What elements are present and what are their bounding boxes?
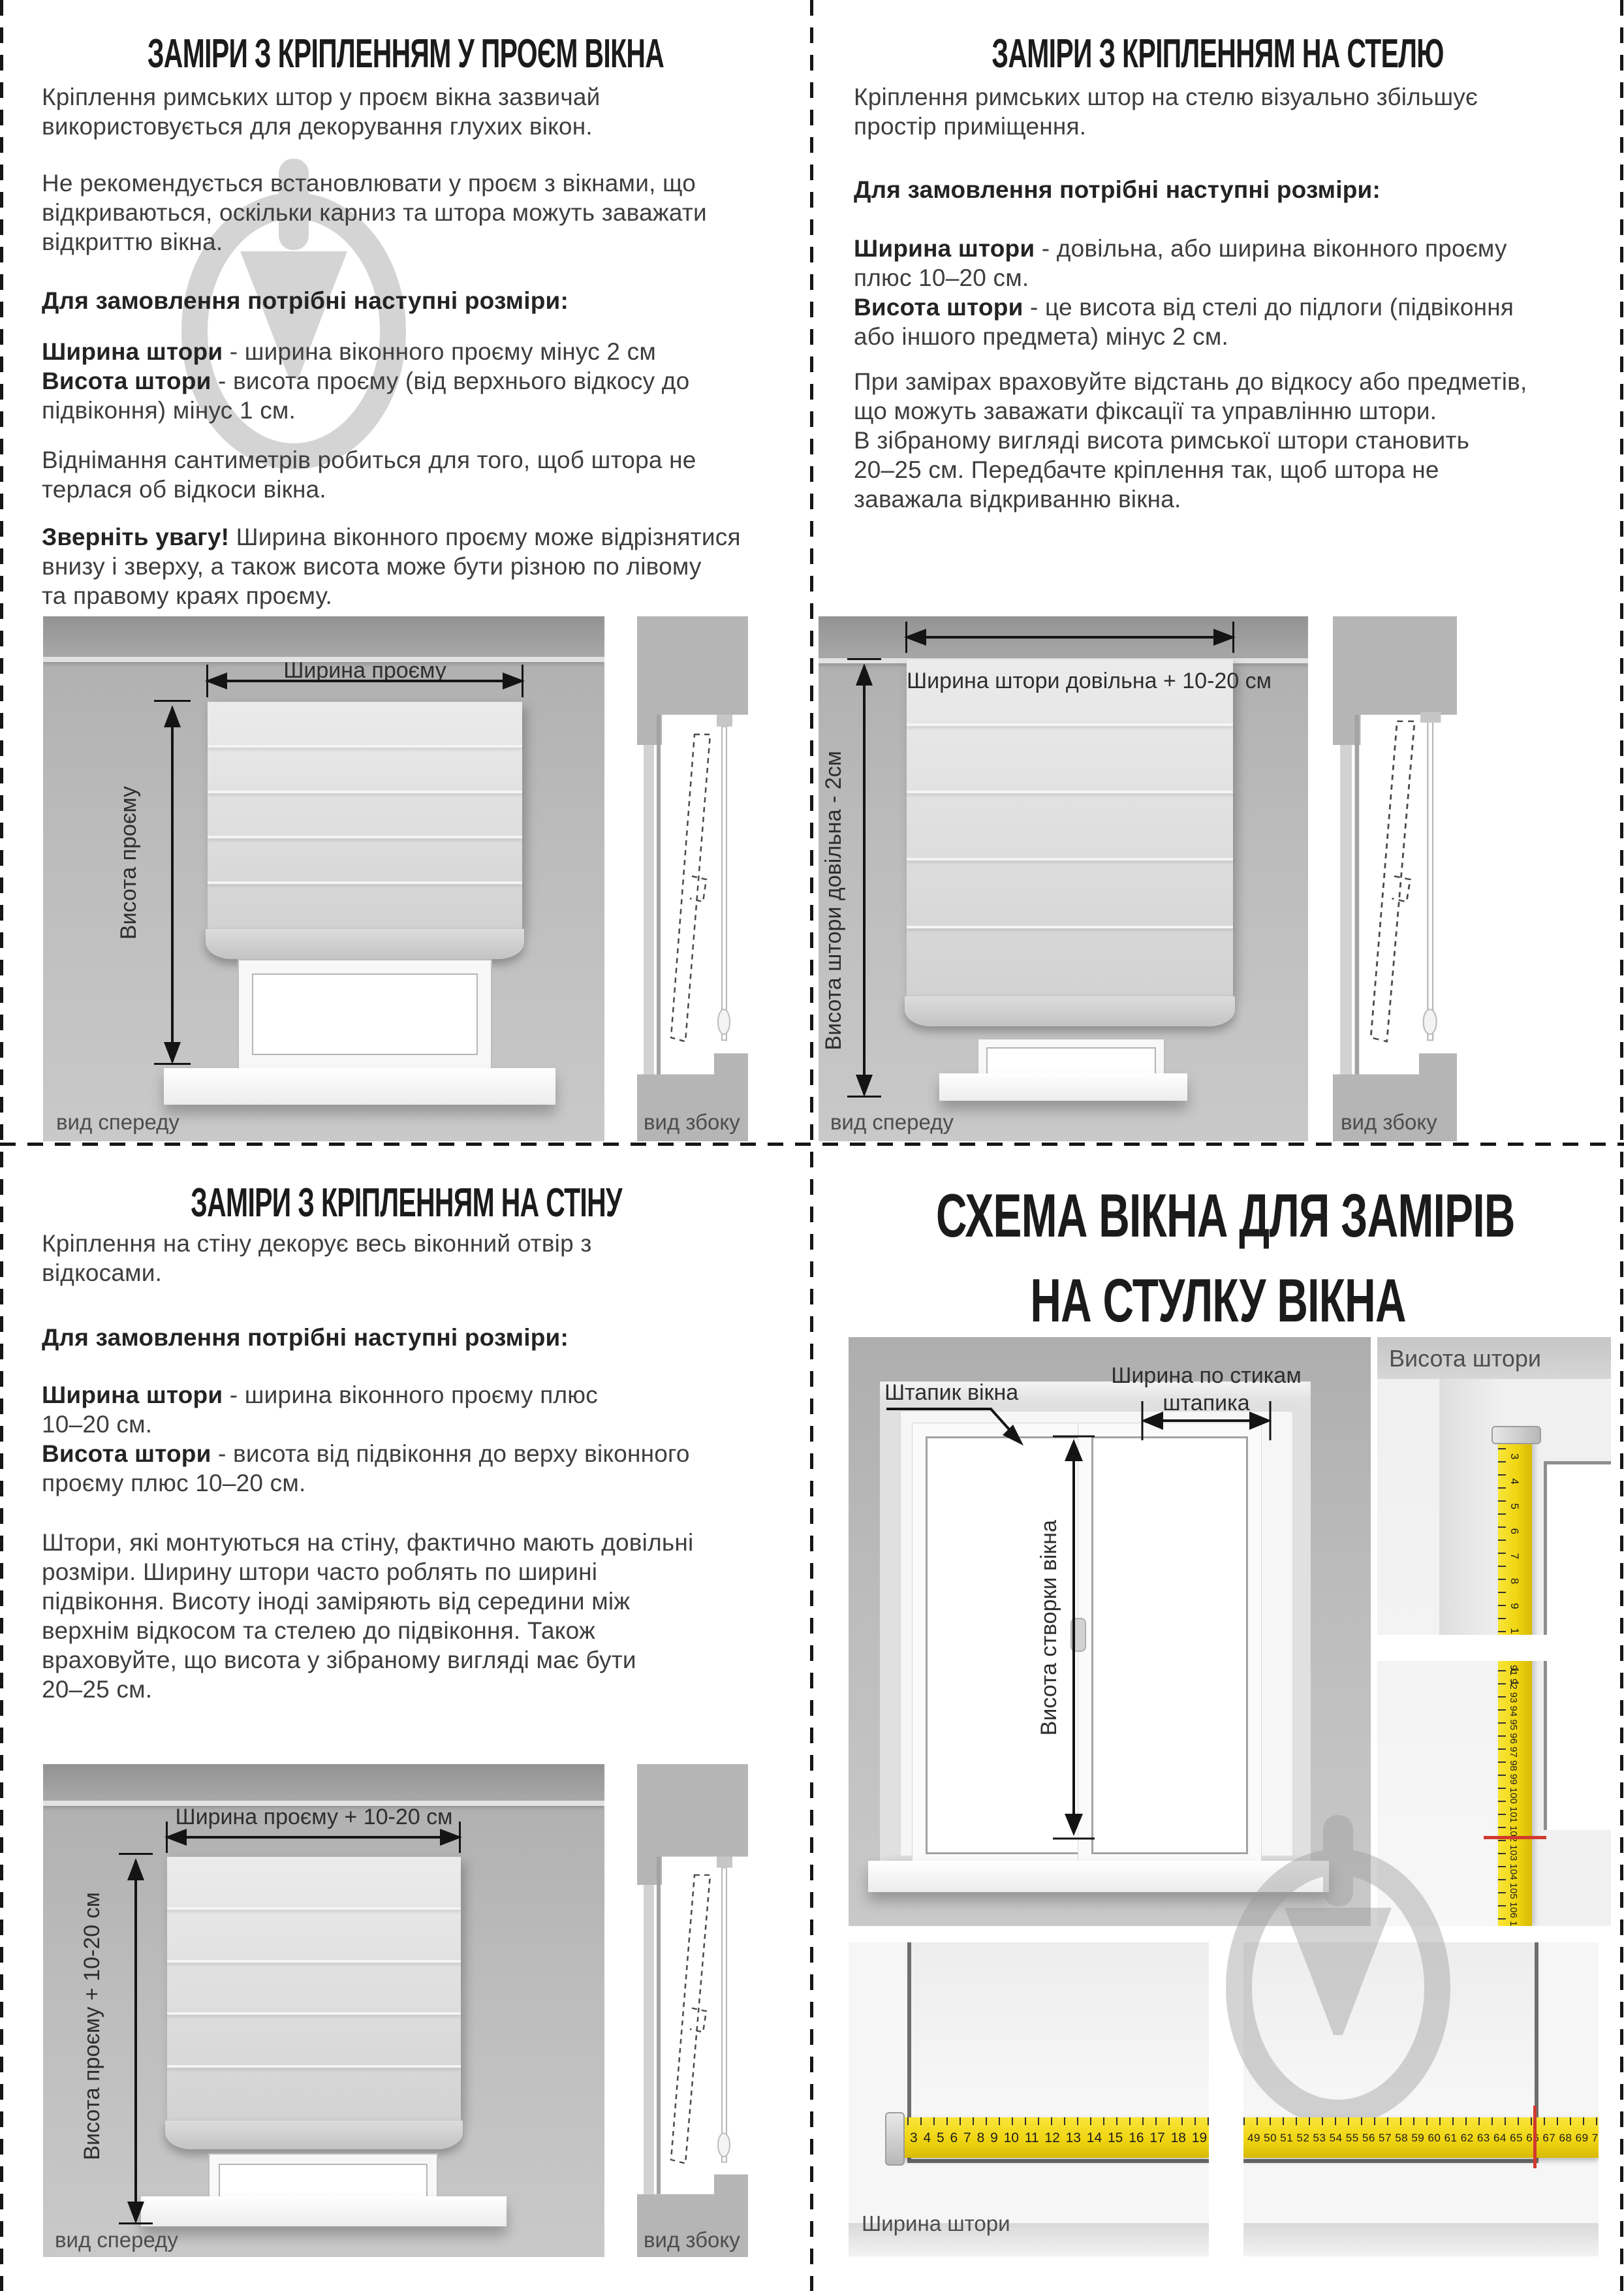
section-title-text: ЗАМІРИ З КРІПЛЕННЯМ У ПРОЄМ ВІКНА [148, 34, 664, 74]
blind-fold [907, 791, 1233, 793]
text-line: Не рекомендується встановлювати у проєм … [42, 168, 786, 198]
ceiling-front-view-panel: Ширина штори довільна + 10-20 см Висота … [819, 616, 1308, 1141]
front-view-caption: вид спереду [55, 2228, 178, 2252]
cornice [43, 616, 604, 657]
tape-ticks [1243, 2117, 1599, 2125]
frame-edge-horizontal [907, 2159, 1209, 2163]
note-line: та правому краях проєму. [42, 581, 786, 610]
wall-terms: Ширина штори - ширина віконного проєму п… [42, 1380, 786, 1498]
curtain-height-label: Висота штори довільна - 2см [821, 751, 847, 1051]
blind-bottom-roll [165, 2121, 463, 2149]
height-term-rest: - висота проєму (від верхнього відкосу д… [211, 368, 690, 394]
width-term: Ширина штори [42, 1382, 223, 1408]
in-opening-front-view-panel: Ширина проєму Висота проєму вид спереду [43, 616, 604, 1141]
height-term-rest: - висота від підвіконня до верху віконно… [211, 1440, 690, 1467]
text-line: Кріплення римських штор на стелю візуаль… [854, 82, 1598, 112]
in-opening-paragraph-2: Не рекомендується встановлювати у проєм … [42, 168, 786, 257]
width-term-line: Ширина штори - ширина віконного проєму м… [42, 337, 786, 366]
width-term-cont: плюс 10–20 см. [854, 263, 1598, 292]
text-line: Кріплення римських штор у проєм вікна за… [42, 82, 786, 112]
ceiling-paragraph-1: Кріплення римських штор на стелю візуаль… [854, 82, 1598, 141]
curtain-height-panel: Висота штори 3 4 5 6 7 8 9 10 11 91 92 9… [1377, 1337, 1611, 1926]
in-opening-terms: Ширина штори - ширина віконного проєму м… [42, 337, 786, 425]
sash-height-label: Висота створки вікна [1037, 1520, 1062, 1735]
blind-fold [167, 2012, 461, 2015]
text-line: що можуть заважати фіксації та управлінн… [854, 396, 1598, 426]
tape-metal-tip [885, 2112, 905, 2166]
text-line: розміри. Ширину штори часто роблять по ш… [42, 1557, 786, 1587]
window-sill [939, 1073, 1187, 1101]
ceiling-side-view-panel: вид збоку [1333, 616, 1457, 1141]
curtain-height-caption: Висота штори [1389, 1345, 1541, 1372]
front-view-caption: вид спереду [56, 1110, 180, 1135]
height-term-line: Висота штори - висота від підвіконня до … [42, 1439, 786, 1468]
opening-height-label: Висота проєму [116, 786, 142, 940]
sill-front-shadow [1243, 2223, 1599, 2256]
height-term-rest: - це висота від стелі до підлоги (підвік… [1023, 294, 1514, 321]
section-title-text: ЗАМІРИ З КРІПЛЕННЯМ НА СТІНУ [191, 1183, 622, 1224]
side-view-drawing [637, 616, 748, 1141]
width-term-line: Ширина штори - ширина віконного проєму п… [42, 1380, 786, 1410]
bead-label: Штапик вікна [884, 1380, 1018, 1406]
blind-fold [208, 745, 522, 748]
frame-edge-horizontal [1243, 2159, 1538, 2163]
blind-fold [208, 791, 522, 793]
height-term: Висота штори [42, 1440, 211, 1467]
window-sill [141, 2196, 507, 2226]
note-line: Зверніть увагу! Ширина віконного проєму … [42, 522, 786, 552]
opening-width-label: Ширина проєму + 10-20 см [151, 1805, 477, 1830]
in-opening-note: Зверніть увагу! Ширина віконного проєму … [42, 522, 786, 610]
side-view-caption: вид збоку [1341, 1110, 1437, 1135]
width-term-rest: - ширина віконного проєму мінус 2 см [223, 338, 656, 365]
ceiling-order-heading: Для замовлення потрібні наступні розміри… [854, 175, 1598, 204]
text-line: Кріплення на стіну декорує весь віконний… [42, 1229, 786, 1258]
wall-side-view-panel: вид збоку [637, 1764, 748, 2257]
roman-blind [208, 702, 522, 929]
section-title-ceiling: ЗАМІРИ З КРІПЛЕННЯМ НА СТЕЛЮ [812, 34, 1624, 74]
wall-order-heading: Для замовлення потрібні наступні розміри… [42, 1323, 786, 1352]
blind-fold [208, 836, 522, 838]
schema-title-text: СХЕМА ВІКНА ДЛЯ ЗАМІРІВ [936, 1183, 1515, 1248]
section-title-text: ЗАМІРИ З КРІПЛЕННЯМ НА СТЕЛЮ [992, 34, 1444, 74]
height-mark-red-line [1484, 1836, 1546, 1839]
cornice [43, 1764, 604, 1801]
tape-numbers-right: 49 50 51 52 53 54 55 56 57 58 59 60 61 6… [1247, 2132, 1597, 2145]
order-heading-text: Для замовлення потрібні наступні розміри… [854, 175, 1598, 204]
text-line: відкриваються, оскільки карниз та штора … [42, 198, 786, 227]
curtain-width-panel-left: 3 4 5 6 7 8 9 10 11 12 13 14 15 16 17 18… [849, 1942, 1209, 2256]
blind-fold [167, 1960, 461, 1963]
side-view-caption: вид збоку [644, 2228, 740, 2252]
in-opening-side-view-panel: вид збоку [637, 616, 748, 1141]
photo-seam [1377, 1635, 1611, 1661]
blind-bottom-roll [905, 996, 1235, 1026]
text-line: В зібраному вигляді висота римської штор… [854, 426, 1598, 455]
cut-line-horizontal [0, 1143, 1624, 1146]
dim-tick [154, 700, 191, 702]
curtain-width-label: Ширина штори довільна + 10-20 см [907, 669, 1233, 694]
blind-fold [208, 881, 522, 884]
leaflet-page: ЗАМІРИ З КРІПЛЕННЯМ У ПРОЄМ ВІКНА Кріпле… [0, 0, 1624, 2291]
note-rest: Ширина віконного проєму може відрізнятис… [229, 524, 741, 550]
curtain-width-panel-right: 49 50 51 52 53 54 55 56 57 58 59 60 61 6… [1243, 1942, 1599, 2256]
text-line: При замірах враховуйте відстань до відко… [854, 367, 1598, 396]
window-sill [164, 1068, 555, 1105]
text-line: верхнім відкосом та стелею до підвіконня… [42, 1616, 786, 1645]
dim-tick [154, 1063, 191, 1065]
roman-blind [167, 1857, 461, 2121]
blind-fold [907, 926, 1233, 928]
text-line: використовується для декорування глухих … [42, 112, 786, 141]
side-view-drawing [637, 1764, 748, 2257]
blind-fold [167, 2065, 461, 2068]
window-frame [239, 960, 491, 1068]
blind-fold [907, 858, 1233, 861]
curtain-width-arrow [907, 636, 1233, 639]
height-term-cont: підвіконня) мінус 1 см. [42, 396, 786, 425]
blind-bottom-roll [206, 929, 524, 959]
wall-paragraph-1: Кріплення на стіну декорує весь віконний… [42, 1229, 786, 1288]
opening-height-label: Висота проєму + 10-20 см [80, 1892, 105, 2160]
text-line: відкриттю вікна. [42, 227, 786, 257]
wall-front-view-panel: Ширина проєму + 10-20 см Висота проєму +… [43, 1764, 604, 2257]
blind-fold [907, 723, 1233, 726]
height-term: Висота штори [854, 294, 1023, 321]
schema-title-line-2: НА СТУЛКУ ВІКНА [812, 1268, 1624, 1333]
ceiling-terms: Ширина штори - довільна, або ширина віко… [854, 234, 1598, 351]
opening-width-arrow [167, 1836, 460, 1839]
text-line: терлася об відкоси вікна. [42, 475, 786, 504]
text-line: простір приміщення. [854, 112, 1598, 141]
text-line: підвіконня. Висоту іноді заміряють від с… [42, 1587, 786, 1616]
height-term: Висота штори [42, 368, 211, 394]
text-line: 20–25 см. Передбачте кріплення так, щоб … [854, 455, 1598, 484]
width-mark-red-line [1533, 2106, 1537, 2168]
schema-dimension-arrows [849, 1337, 1371, 1926]
width-term-cont: 10–20 см. [42, 1410, 786, 1439]
height-term-cont: проєму плюс 10–20 см. [42, 1468, 786, 1498]
curtain-height-arrow [863, 666, 866, 1094]
height-term-line: Висота штори - висота проєму (від верхнь… [42, 366, 786, 396]
in-opening-paragraph-3: Віднімання сантиметрів робиться для того… [42, 445, 786, 504]
sash-schema-panel: Штапик вікна Ширина по стикам штапика Ви… [849, 1337, 1371, 1926]
order-heading-text: Для замовлення потрібні наступні розміри… [42, 1323, 786, 1352]
text-line: 20–25 см. [42, 1675, 786, 1704]
curtain-width-caption: Ширина штори [862, 2211, 1010, 2236]
schema-title-line-1: СХЕМА ВІКНА ДЛЯ ЗАМІРІВ [812, 1183, 1624, 1248]
note-line: внизу і зверху, а також висота може бути… [42, 552, 786, 581]
ceiling-paragraph-3: При замірах враховуйте відстань до відко… [854, 367, 1598, 514]
tape-metal-tip [1491, 1426, 1541, 1444]
note-label: Зверніть увагу! [42, 524, 229, 550]
dim-tick [119, 2222, 153, 2224]
text-line: Віднімання сантиметрів робиться для того… [42, 445, 786, 475]
width-by-bead-label-2: штапика [1106, 1391, 1306, 1416]
tape-ticks [1498, 1435, 1506, 1926]
text-line: відкосами. [42, 1258, 786, 1288]
wall-paragraph-3: Штори, які монтуються на стіну, фактично… [42, 1528, 786, 1704]
section-title-wall: ЗАМІРИ З КРІПЛЕННЯМ НА СТІНУ [0, 1183, 812, 1224]
in-opening-paragraph-1: Кріплення римських штор у проєм вікна за… [42, 82, 786, 141]
text-line: заважала відкриванню вікна. [854, 484, 1598, 514]
blind-fold [167, 1907, 461, 1910]
section-title-in-opening: ЗАМІРИ З КРІПЛЕННЯМ У ПРОЄМ ВІКНА [0, 34, 812, 74]
schema-title-text: НА СТУЛКУ ВІКНА [1030, 1268, 1406, 1333]
opening-height-arrow [134, 1861, 137, 2221]
text-line: Штори, які монтуються на стіну, фактично… [42, 1528, 786, 1557]
opening-height-arrow [171, 708, 174, 1062]
dim-tick [847, 658, 881, 660]
width-term-rest: - довільна, або ширина віконного проєму [1035, 235, 1507, 262]
order-heading-text: Для замовлення потрібні наступні розміри… [42, 286, 786, 315]
front-view-caption: вид спереду [830, 1110, 954, 1135]
dim-tick [847, 1096, 881, 1098]
opening-width-arrow [208, 680, 522, 682]
width-term: Ширина штори [42, 338, 223, 365]
width-term: Ширина штори [854, 235, 1035, 262]
tape-numbers-bottom: 91 92 93 94 95 96 97 98 99 100 101 102 1… [1508, 1665, 1519, 1920]
text-line: враховуйте, що висота у зібраному вигляд… [42, 1645, 786, 1675]
height-term-cont: або іншого предмета) мінус 2 см. [854, 322, 1598, 351]
tape-ticks [894, 2117, 1209, 2125]
tape-numbers-left: 3 4 5 6 7 8 9 10 11 12 13 14 15 16 17 18… [910, 2130, 1208, 2146]
side-view-drawing [1333, 616, 1457, 1141]
dim-tick [119, 1853, 153, 1855]
wall-strip [1439, 1379, 1499, 1635]
roman-blind [907, 659, 1233, 996]
width-by-bead-label-1: Ширина по стикам [1106, 1363, 1306, 1389]
width-term-line: Ширина штори - довільна, або ширина віко… [854, 234, 1598, 263]
side-view-caption: вид збоку [644, 1110, 740, 1135]
width-term-rest: - ширина віконного проєму плюс [223, 1382, 598, 1408]
in-opening-order-heading: Для замовлення потрібні наступні розміри… [42, 286, 786, 315]
height-term-line: Висота штори - це висота від стелі до пі… [854, 292, 1598, 322]
tape-numbers-top: 3 4 5 6 7 8 9 10 11 [1508, 1453, 1521, 1631]
